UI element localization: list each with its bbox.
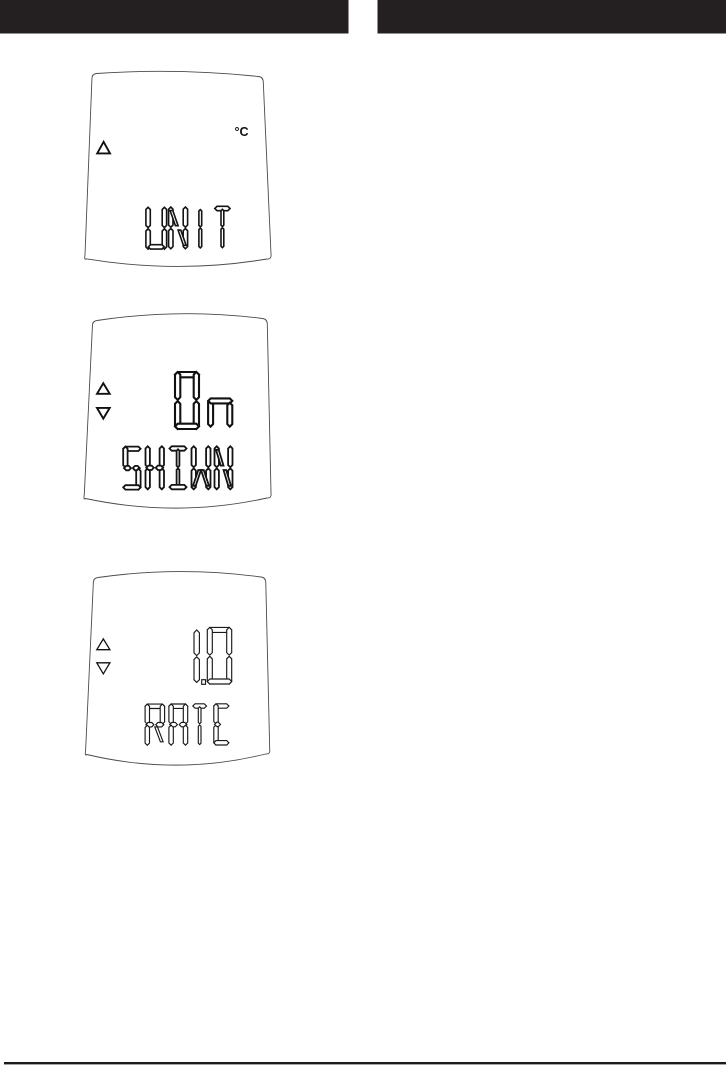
svg-text:°C: °C: [235, 125, 249, 139]
